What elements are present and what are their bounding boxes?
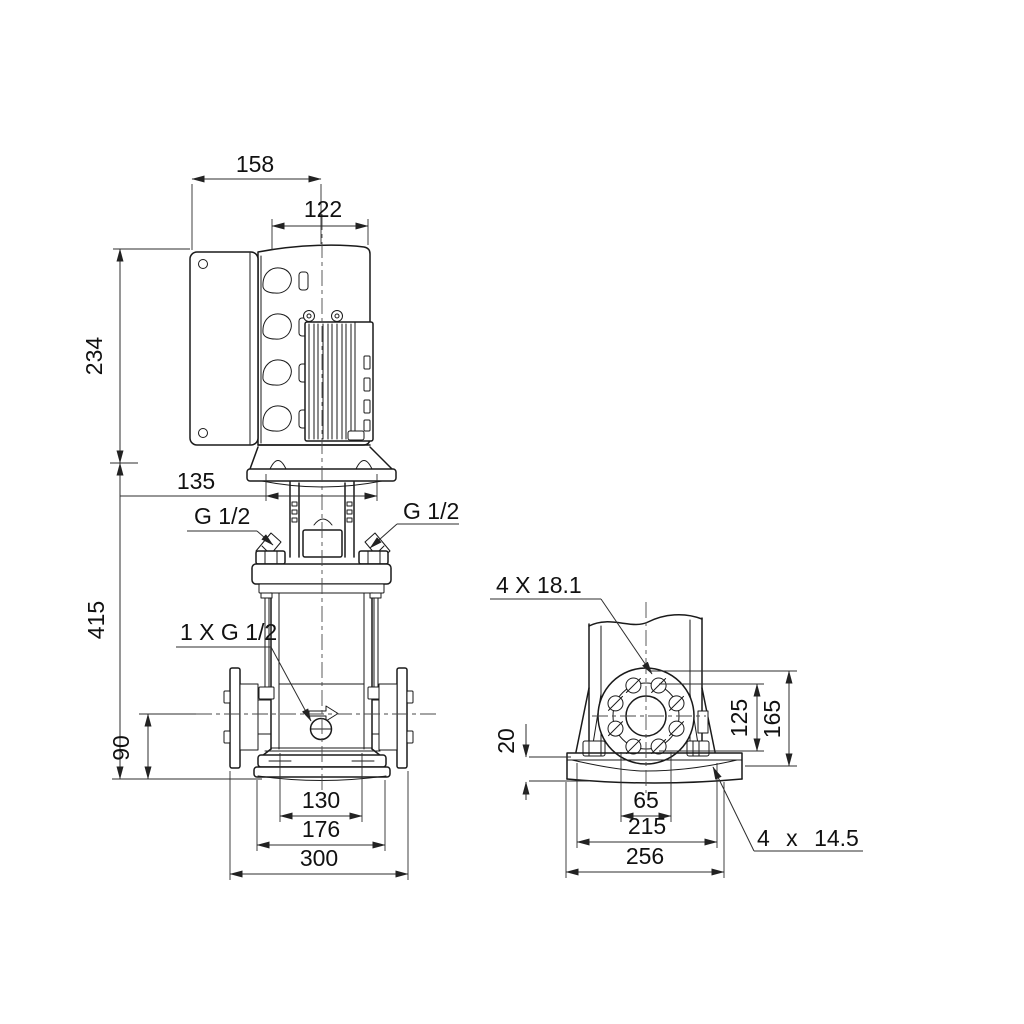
pump-head	[252, 481, 391, 593]
dim-base-width: 176	[302, 816, 340, 842]
control-box-screw-bottom-icon	[199, 429, 208, 438]
drain-plug	[309, 706, 338, 740]
suction-flange	[224, 668, 271, 768]
front-view: 158 122 234 135 415 90 130 176	[81, 151, 459, 880]
tie-rods	[265, 593, 378, 687]
motor-stool	[247, 445, 396, 481]
dim-flange-hole-pitch: 65	[633, 787, 659, 813]
side-view: 4 X 18.1 125 165 20 65 215 256 4	[490, 572, 863, 878]
label-vent-plug-right: G 1/2	[403, 498, 459, 524]
label-flange-holes: 4 X 18.1	[496, 572, 582, 598]
nameplate	[303, 530, 342, 557]
dim-base-depth: 256	[626, 843, 664, 869]
shaft-dome	[314, 519, 332, 525]
dim-port-height: 90	[108, 735, 134, 761]
dim-bolt-circle-height: 125	[726, 699, 752, 737]
dim-pump-height: 415	[83, 601, 109, 639]
label-vent-plug-left: G 1/2	[194, 503, 250, 529]
dim-port-to-port: 300	[300, 845, 338, 871]
head-flange	[252, 564, 391, 584]
vent-plug-right	[359, 533, 390, 564]
label-drain-plug: 1 X G 1/2	[180, 619, 277, 645]
control-box-screw-top-icon	[199, 260, 208, 269]
motor-cooling-fins	[261, 256, 308, 443]
dim-flange-top-height: 165	[759, 700, 785, 738]
dim-head-width: 135	[177, 468, 215, 494]
heatsink-screw-right-icon	[332, 311, 343, 322]
break-line	[589, 615, 702, 626]
pump-dimensional-drawing-page: 158 122 234 135 415 90 130 176	[0, 0, 1024, 1024]
dim-base-plate-thickness: 20	[493, 728, 519, 754]
dim-chamber-width: 130	[302, 787, 340, 813]
label-base-plate-holes: 4 x 14.5	[757, 825, 859, 851]
dim-base-hole-pitch: 215	[628, 813, 666, 839]
drive-heatsink	[304, 311, 374, 442]
motor-assembly	[190, 245, 396, 481]
dim-motor-width: 122	[304, 196, 342, 222]
control-box	[190, 252, 258, 445]
dim-motor-height: 234	[81, 337, 107, 376]
dim-control-box-width: 158	[236, 151, 274, 177]
heatsink-screw-left-icon	[304, 311, 315, 322]
vent-plug-left	[256, 533, 285, 564]
nameplate-edge	[698, 711, 708, 733]
technical-drawing: 158 122 234 135 415 90 130 176	[0, 0, 1024, 1024]
